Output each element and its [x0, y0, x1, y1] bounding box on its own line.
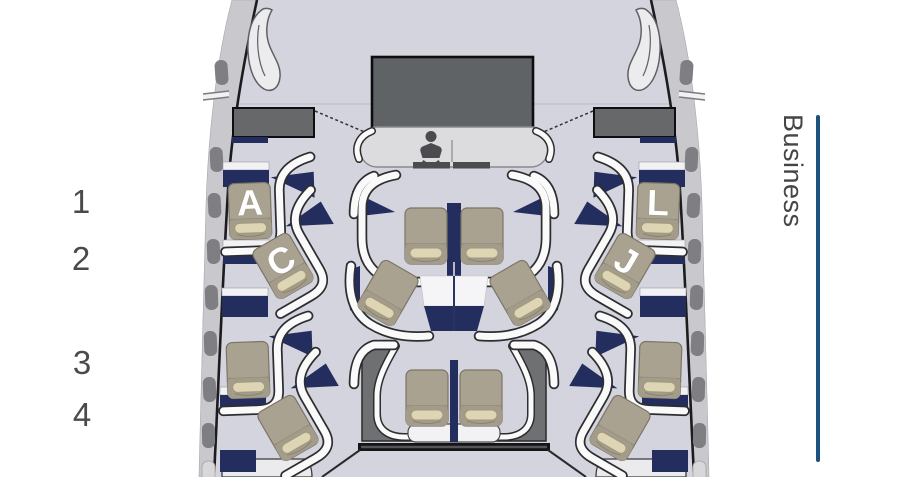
seat-1L-letter[interactable]: L	[646, 182, 669, 225]
seat-row1-center-right[interactable]	[461, 208, 503, 264]
row-label-3: 3	[73, 344, 91, 382]
cabin-class-extent-line	[816, 115, 820, 462]
seat-map-canvas: 1 2 3 4 A C J L Business	[0, 0, 919, 477]
front-monument	[372, 57, 533, 130]
seat-row3-center-left[interactable]	[406, 370, 448, 426]
seat-row1-center-left[interactable]	[405, 208, 447, 264]
cabin-graphic	[0, 0, 919, 477]
front-console	[357, 127, 551, 169]
seat-row3-center-right[interactable]	[460, 370, 502, 426]
seat-1A-letter[interactable]: A	[236, 182, 263, 225]
row-label-1: 1	[72, 183, 90, 221]
cabin-class-label: Business	[777, 114, 808, 228]
row-label-4: 4	[73, 396, 91, 434]
row-label-2: 2	[72, 240, 90, 278]
